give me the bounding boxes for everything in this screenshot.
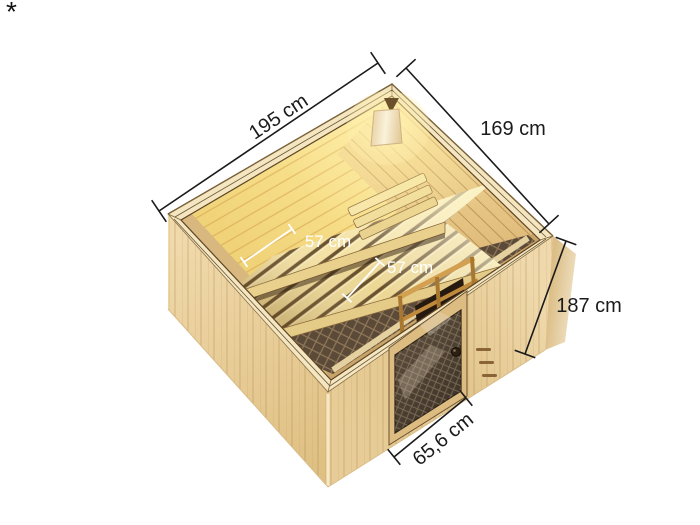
lamp-shade bbox=[371, 109, 402, 146]
label-169cm: 169 cm bbox=[480, 118, 546, 140]
label-57cm-upper: 57 cm bbox=[305, 232, 351, 251]
door-handle bbox=[452, 348, 461, 357]
footnote-asterisk: * bbox=[6, 0, 17, 26]
product-dimension-image: * bbox=[0, 0, 700, 525]
label-187cm: 187 cm bbox=[556, 295, 622, 317]
corner-lamp bbox=[346, 91, 430, 165]
sauna-dimension-diagram: 195 cm 169 cm 187 cm 65,6 cm bbox=[0, 0, 700, 525]
label-57cm-lower: 57 cm bbox=[387, 258, 433, 277]
sauna-illustration bbox=[168, 30, 576, 487]
